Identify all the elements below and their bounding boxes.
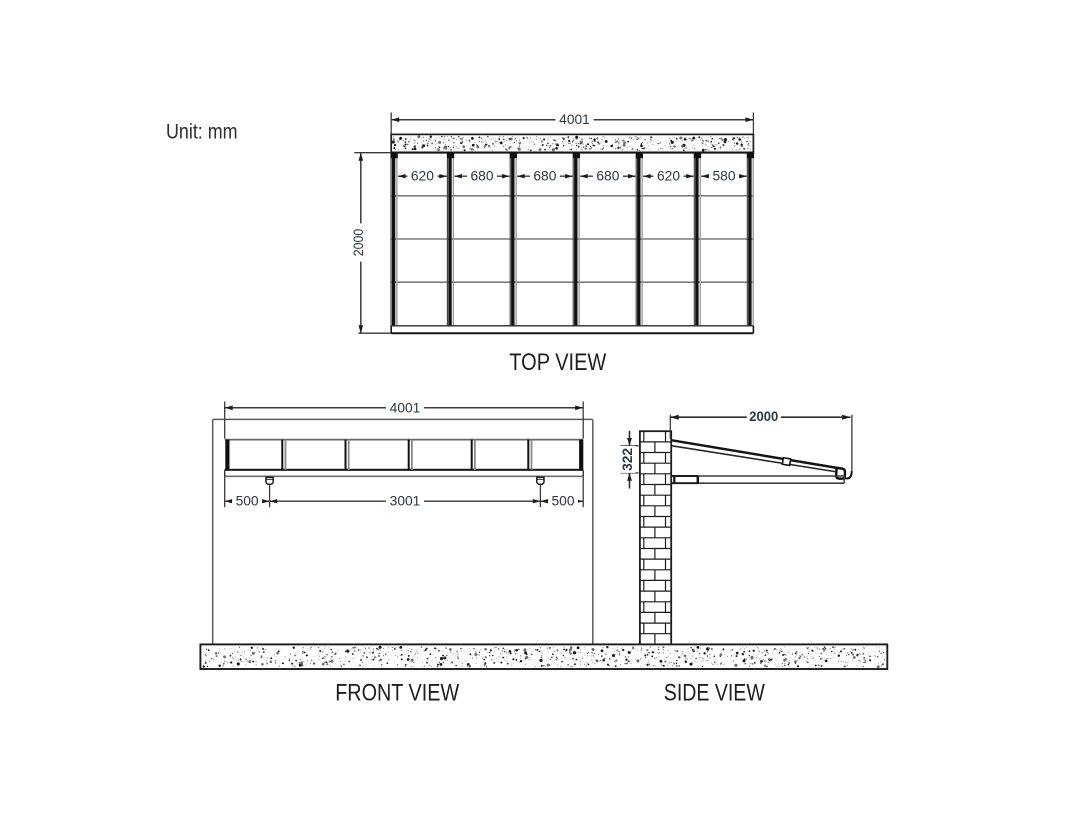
svg-text:SIDE VIEW: SIDE VIEW bbox=[664, 680, 766, 707]
svg-text:3001: 3001 bbox=[390, 494, 421, 509]
svg-text:500: 500 bbox=[551, 494, 574, 509]
svg-text:2000: 2000 bbox=[351, 228, 366, 256]
svg-text:322: 322 bbox=[620, 448, 635, 471]
svg-text:620: 620 bbox=[411, 169, 434, 184]
svg-text:FRONT VIEW: FRONT VIEW bbox=[335, 680, 460, 707]
svg-text:580: 580 bbox=[712, 169, 735, 184]
svg-text:TOP VIEW: TOP VIEW bbox=[509, 349, 607, 376]
svg-text:4001: 4001 bbox=[559, 112, 590, 127]
svg-text:680: 680 bbox=[470, 169, 493, 184]
svg-text:680: 680 bbox=[596, 169, 619, 184]
svg-text:680: 680 bbox=[533, 169, 556, 184]
svg-text:Unit: mm: Unit: mm bbox=[166, 120, 238, 144]
svg-text:4001: 4001 bbox=[390, 400, 421, 415]
svg-text:500: 500 bbox=[236, 494, 259, 509]
svg-text:2000: 2000 bbox=[749, 409, 778, 425]
svg-text:620: 620 bbox=[657, 169, 680, 184]
